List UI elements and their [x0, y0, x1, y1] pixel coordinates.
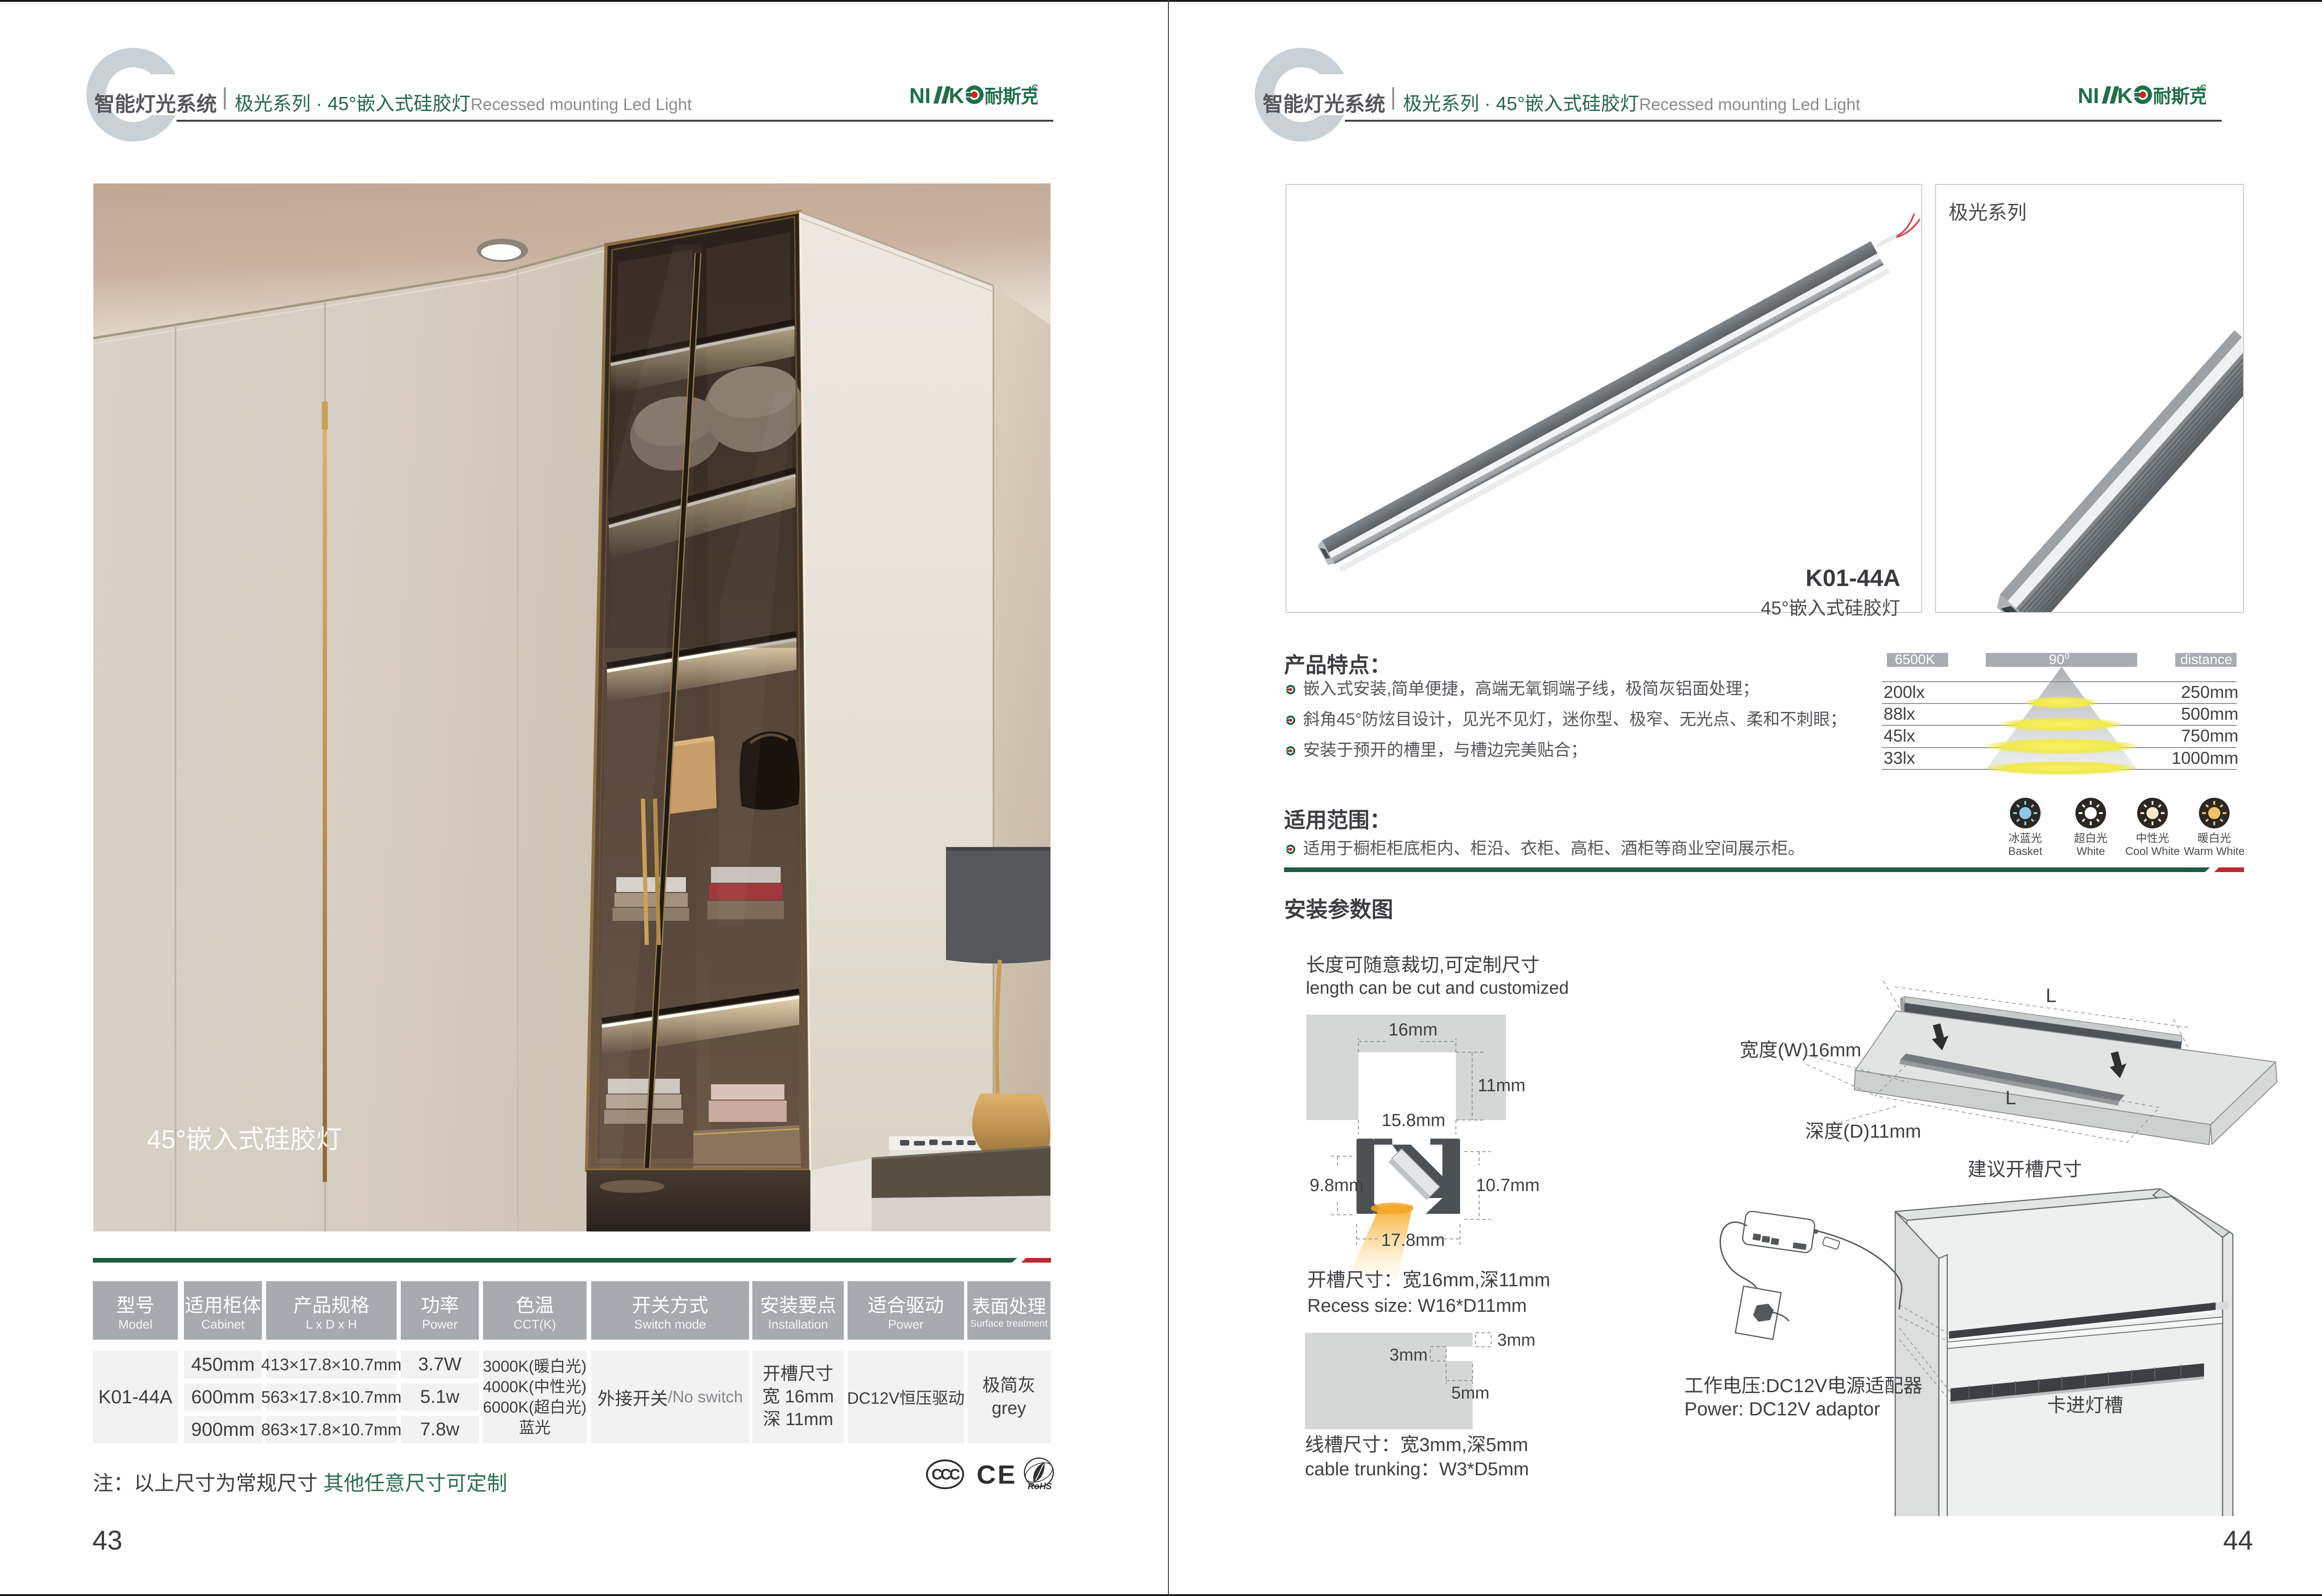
svg-text:6500K: 6500K: [1895, 652, 1935, 667]
svg-text:Recess size: W16*D11mm: Recess size: W16*D11mm: [1307, 1296, 1527, 1316]
svg-text:宽度(W)16mm: 宽度(W)16mm: [1740, 1039, 1861, 1061]
svg-text:500mm: 500mm: [2181, 704, 2238, 723]
svg-text:250mm: 250mm: [2181, 683, 2238, 702]
svg-text:Basket: Basket: [2008, 845, 2042, 857]
svg-text:1000mm: 1000mm: [2172, 749, 2238, 768]
svg-text:暖白光: 暖白光: [2198, 832, 2231, 845]
svg-text:卡进灯槽: 卡进灯槽: [2047, 1394, 2123, 1416]
svg-text:耐斯克: 耐斯克: [985, 86, 1037, 107]
svg-text:length can be cut and customiz: length can be cut and customized: [1306, 978, 1569, 998]
svg-text:3mm: 3mm: [1389, 1345, 1428, 1364]
svg-text:NI: NI: [2078, 84, 2099, 108]
svg-text:90: 90: [2049, 652, 2064, 667]
svg-text:超白光: 超白光: [2074, 832, 2107, 845]
svg-text:distance: distance: [2180, 652, 2232, 667]
svg-text:RoHS: RoHS: [1028, 1482, 1052, 1492]
svg-text:3mm: 3mm: [1497, 1330, 1535, 1349]
svg-text:长度可随意裁切,可定制尺寸: 长度可随意裁切,可定制尺寸: [1306, 954, 1539, 976]
svg-text:开槽尺寸：宽16mm,深11mm: 开槽尺寸：宽16mm,深11mm: [1307, 1269, 1550, 1290]
svg-text:R: R: [1033, 86, 1037, 91]
svg-text:15.8mm: 15.8mm: [1382, 1111, 1445, 1130]
svg-text:CCC: CCC: [932, 1466, 960, 1483]
svg-text:33lx: 33lx: [1884, 749, 1915, 768]
svg-text:16mm: 16mm: [1389, 1020, 1438, 1040]
svg-text:Power: DC12V adaptor: Power: DC12V adaptor: [1684, 1398, 1880, 1420]
svg-text:17.8mm: 17.8mm: [1381, 1231, 1445, 1250]
svg-text:建议开槽尺寸: 建议开槽尺寸: [1968, 1159, 2082, 1180]
svg-text:线槽尺寸：宽3mm,深5mm: 线槽尺寸：宽3mm,深5mm: [1305, 1434, 1528, 1455]
svg-text:5mm: 5mm: [1451, 1383, 1489, 1402]
svg-text:NI: NI: [909, 84, 931, 108]
svg-text:White: White: [2076, 845, 2105, 857]
svg-text:R: R: [2202, 86, 2205, 91]
svg-text:11mm: 11mm: [1478, 1076, 1526, 1095]
svg-text:10.7mm: 10.7mm: [1476, 1176, 1539, 1195]
svg-text:中性光: 中性光: [2136, 832, 2169, 845]
svg-text:200lx: 200lx: [1884, 683, 1925, 702]
svg-text:L: L: [2046, 984, 2056, 1006]
svg-text:CE: CE: [977, 1460, 1017, 1490]
svg-text:L: L: [2005, 1087, 2016, 1108]
svg-text:750mm: 750mm: [2181, 726, 2238, 745]
svg-text:cable trunking：W3*D5mm: cable trunking：W3*D5mm: [1305, 1459, 1529, 1479]
svg-text:耐斯克: 耐斯克: [2153, 86, 2206, 107]
svg-text:Warm White: Warm White: [2184, 845, 2244, 857]
svg-text:工作电压:DC12V电源适配器: 工作电压:DC12V电源适配器: [1684, 1375, 1923, 1396]
svg-text:9.8mm: 9.8mm: [1310, 1176, 1363, 1195]
svg-text:冰蓝光: 冰蓝光: [2009, 832, 2042, 845]
svg-text:深度(D)11mm: 深度(D)11mm: [1805, 1120, 1921, 1142]
svg-text:88lx: 88lx: [1884, 704, 1915, 723]
svg-text:0: 0: [2065, 651, 2069, 661]
svg-text:K: K: [2117, 84, 2133, 108]
svg-text:Cool White: Cool White: [2125, 845, 2179, 857]
svg-text:45lx: 45lx: [1884, 726, 1915, 745]
svg-text:K: K: [949, 84, 964, 108]
svg-text:45°嵌入式硅胶灯: 45°嵌入式硅胶灯: [147, 1125, 342, 1154]
